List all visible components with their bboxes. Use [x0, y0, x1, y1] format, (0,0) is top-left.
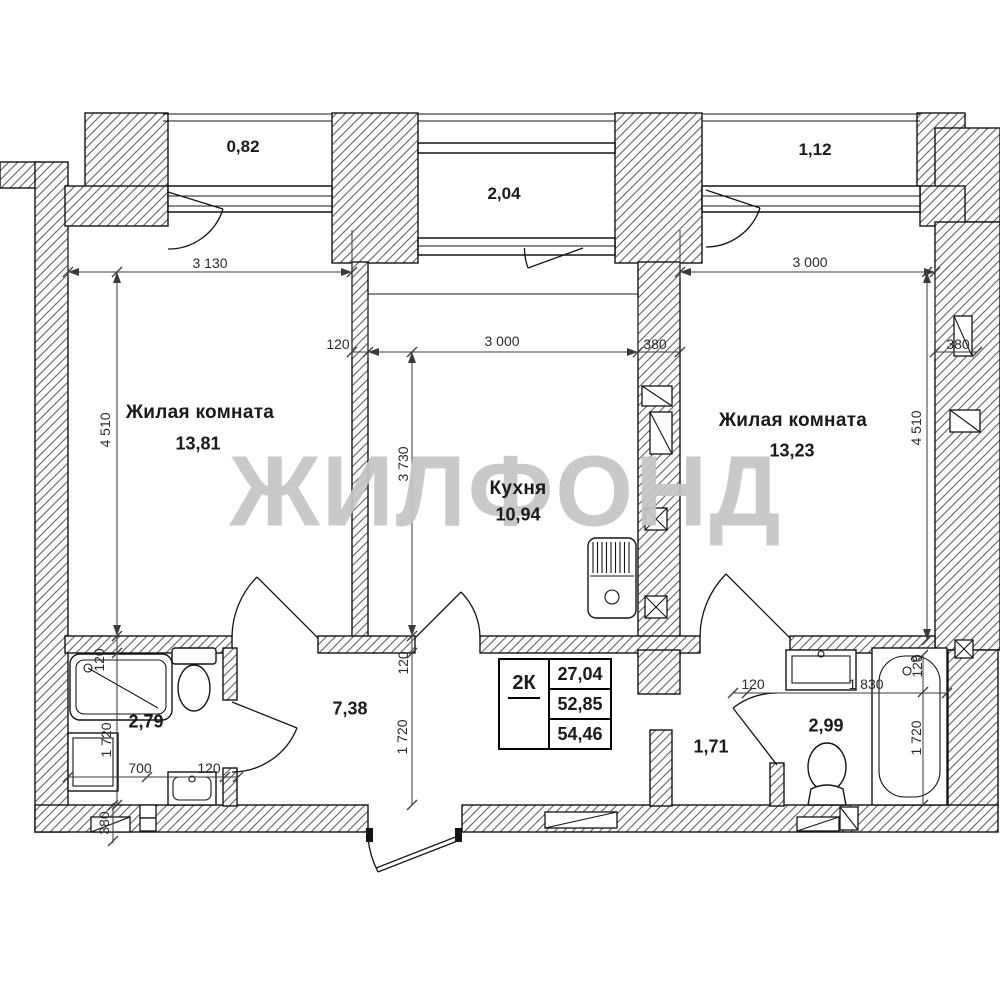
dim-label: 700 [128, 760, 151, 776]
dim-label: 3 000 [484, 333, 519, 349]
legend-table: 2К 27,04 52,85 54,46 [498, 658, 612, 750]
dim-label: 380 [96, 811, 112, 834]
legend-type: 2К [508, 672, 539, 699]
dim-label: 3 730 [395, 446, 411, 481]
room-area-living-left: 13,81 [175, 434, 220, 455]
dim-label: 4 510 [908, 410, 924, 445]
zone-area-bathroom-right: 2,99 [808, 716, 843, 737]
legend-usable-area: 52,85 [550, 690, 610, 720]
dim-label: 120 [395, 651, 411, 674]
dim-label: 120 [91, 648, 107, 671]
room-area-living-right: 13,23 [769, 441, 814, 462]
balcony-area-left: 0,82 [226, 137, 259, 157]
room-area-kitchen: 10,94 [495, 505, 540, 526]
legend-total-area: 54,46 [550, 720, 610, 748]
zone-area-bathroom-left: 2,79 [128, 712, 163, 733]
dim-label: 1 830 [848, 676, 883, 692]
dim-label: 120 [197, 760, 220, 776]
zone-area-corridor: 1,71 [693, 737, 728, 758]
legend-values: 27,04 52,85 54,46 [550, 660, 610, 748]
room-name-living-right: Жилая комната [719, 410, 867, 432]
floor-plan: ЖИЛФОНД Жилая комната 13,81 Кухня 10,94 … [0, 0, 1000, 1000]
dim-label: 3 130 [192, 255, 227, 271]
dim-label: 1 720 [908, 720, 924, 755]
balcony-area-center: 2,04 [487, 184, 520, 204]
room-name-living-left: Жилая комната [126, 402, 274, 424]
dim-label: 380 [643, 336, 666, 352]
dim-label: 1 720 [394, 719, 410, 754]
zone-area-hallway: 7,38 [332, 699, 367, 720]
dim-label: 1 720 [98, 722, 114, 757]
dim-label: 120 [909, 654, 925, 677]
dim-label: 120 [741, 676, 764, 692]
vent-symbols [91, 316, 980, 832]
balcony-area-right: 1,12 [798, 140, 831, 160]
legend-living-area: 27,04 [550, 660, 610, 690]
dim-label: 3 000 [792, 254, 827, 270]
legend-type-cell: 2К [500, 660, 550, 748]
dim-label: 380 [946, 336, 969, 352]
dim-label: 4 510 [97, 412, 113, 447]
room-name-kitchen: Кухня [489, 478, 546, 500]
dim-label: 120 [326, 336, 349, 352]
